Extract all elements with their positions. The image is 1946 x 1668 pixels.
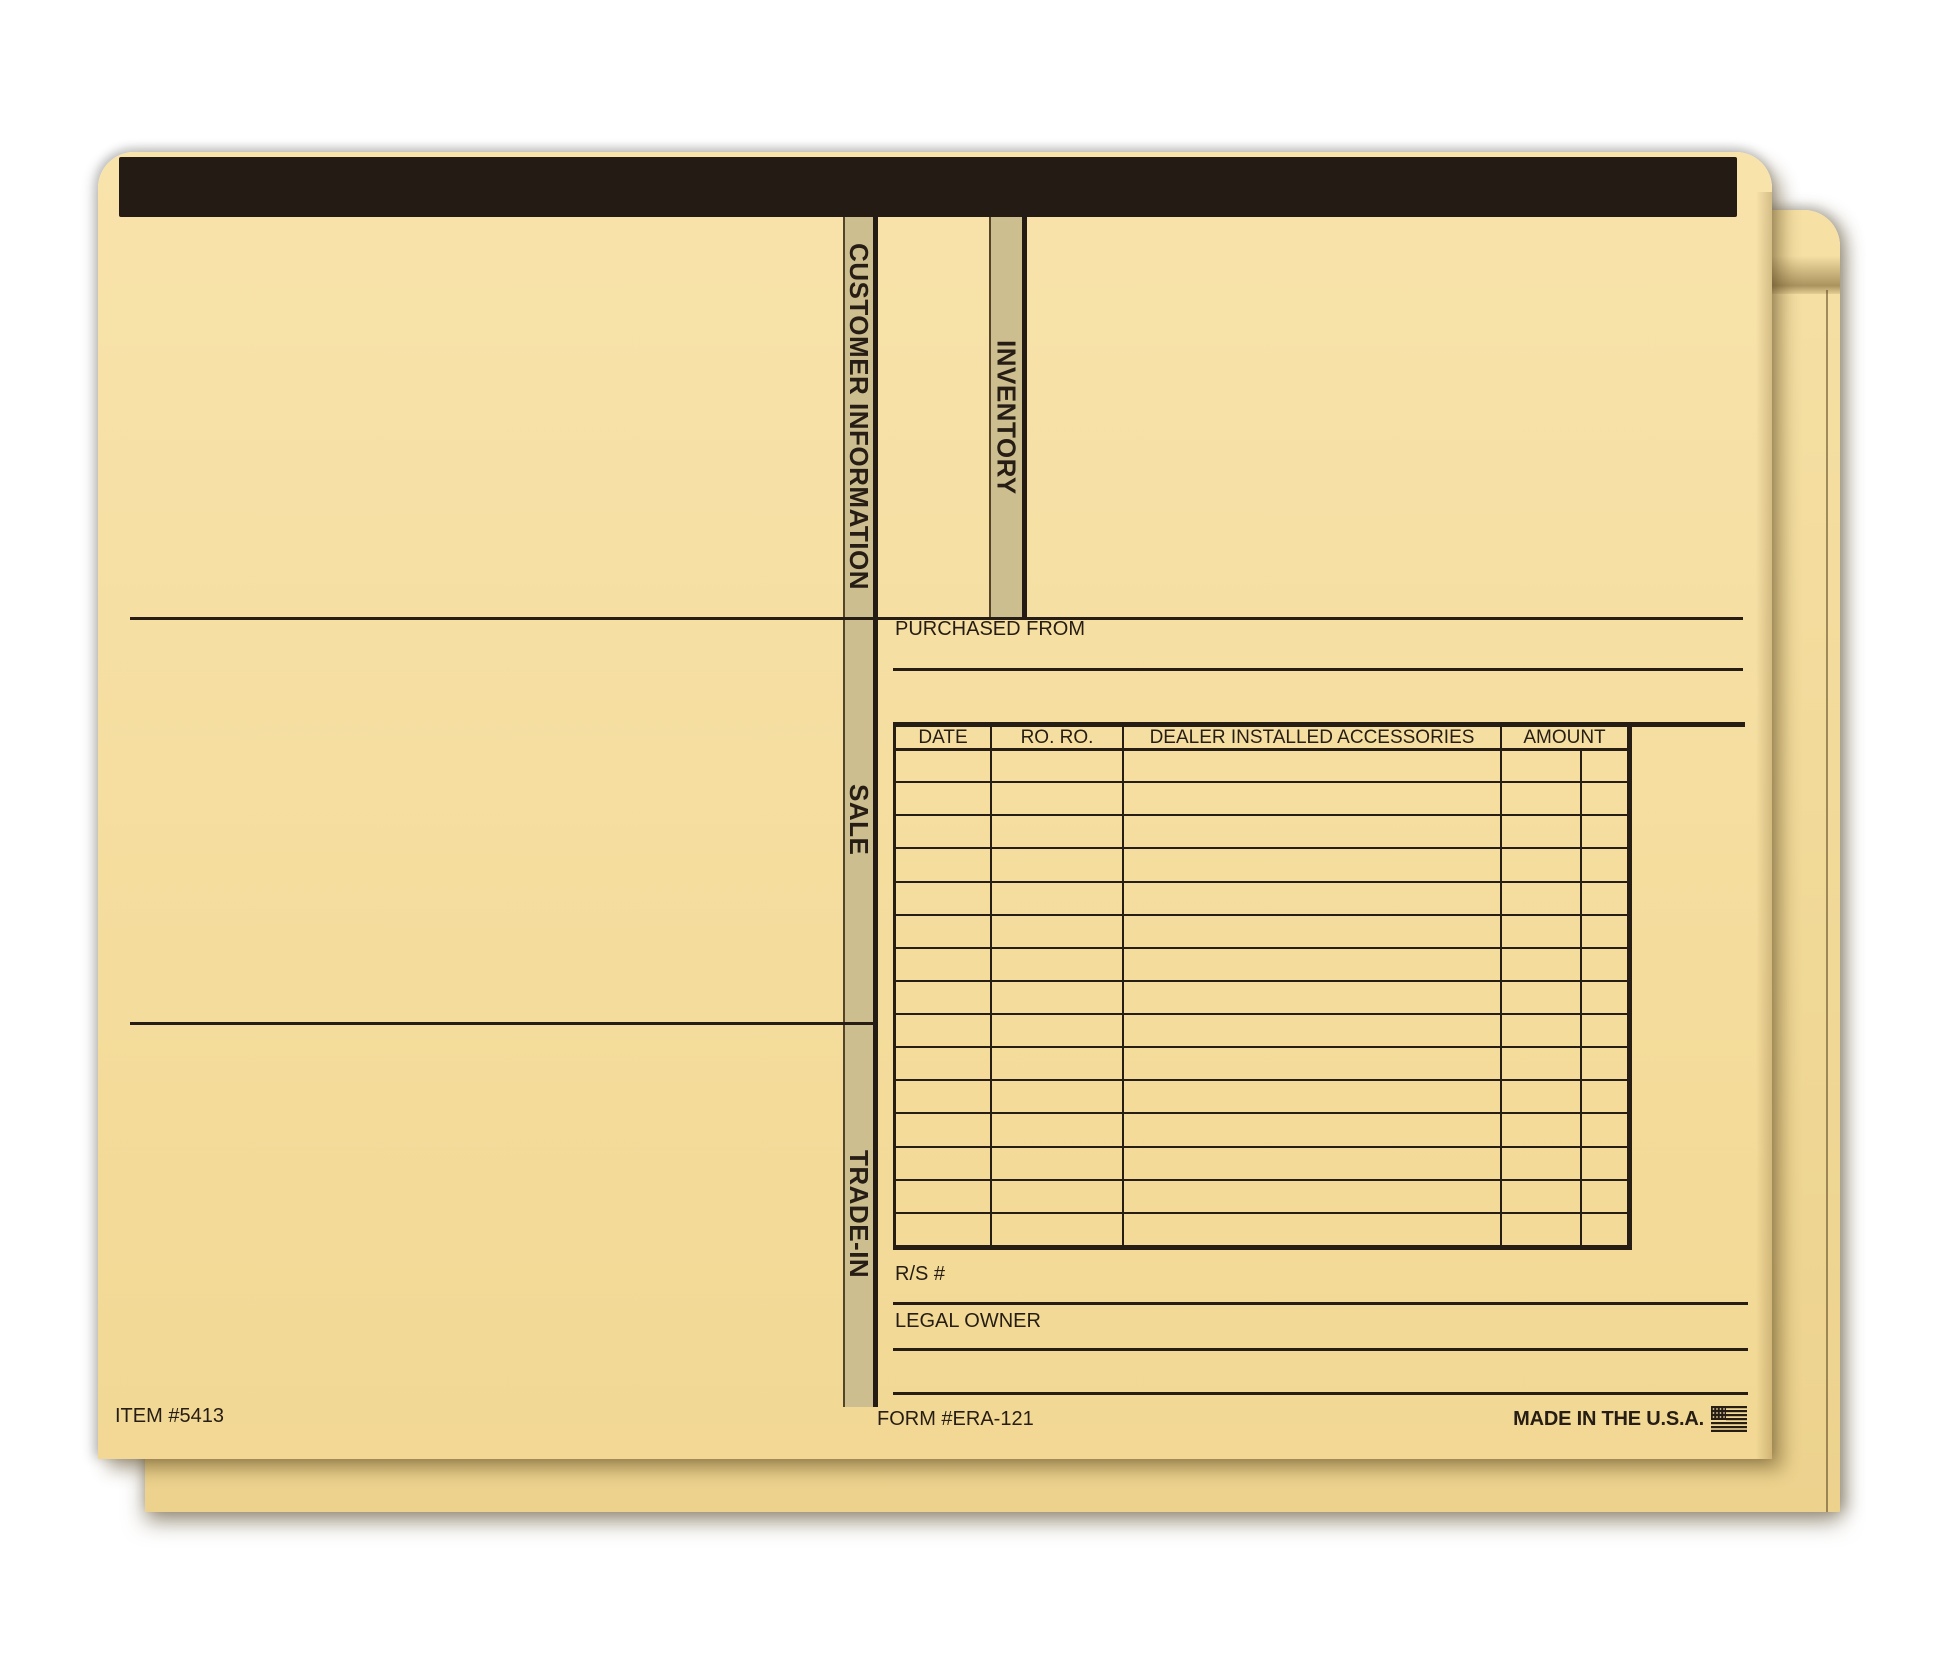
front-panel-fold-shading: [1756, 192, 1772, 1459]
accessories-table: DATE RO. RO. DEALER INSTALLED ACCESSORIE…: [893, 722, 1632, 1250]
table-row-line: [893, 980, 1627, 982]
legal-owner-label: LEGAL OWNER: [895, 1310, 1041, 1333]
inventory-tab-strip: INVENTORY: [989, 217, 1027, 617]
table-row-line: [893, 847, 1627, 849]
purchased-from-write-line: [893, 668, 1743, 671]
table-header-roro: RO. RO.: [992, 727, 1122, 748]
table-header-date: DATE: [896, 727, 990, 748]
table-col-rule-cents: [1580, 751, 1582, 1245]
tab-customer-information: CUSTOMER INFORMATION: [845, 217, 873, 617]
back-tab-fold-shadow: [1770, 256, 1840, 294]
rs-number-write-line: [893, 1302, 1748, 1305]
table-row-line: [893, 814, 1627, 816]
table-row-line: [893, 914, 1627, 916]
back-panel-crease: [1826, 290, 1828, 1512]
table-row-line: [893, 1212, 1627, 1214]
table-row-line: [893, 1079, 1627, 1081]
table-row-line: [893, 1146, 1627, 1148]
table-row-line: [893, 1046, 1627, 1048]
us-flag-icon: [1711, 1406, 1747, 1432]
table-col-rule-roro: [1122, 727, 1124, 1245]
table-row-line: [893, 1112, 1627, 1114]
rs-number-label: R/S #: [895, 1263, 945, 1286]
table-row-line: [893, 781, 1627, 783]
envelope-front-panel: CUSTOMER INFORMATION SALE TRADE-IN INVEN…: [98, 152, 1772, 1459]
table-row-line: [893, 881, 1627, 883]
legal-owner-write-line-2: [893, 1392, 1748, 1395]
tab-inventory: INVENTORY: [991, 217, 1022, 617]
deal-jacket-product-image: CUSTOMER INFORMATION SALE TRADE-IN INVEN…: [0, 0, 1946, 1668]
tab-trade-in-label: TRADE-IN: [845, 1150, 873, 1278]
purchased-from-label: PURCHASED FROM: [895, 618, 1085, 641]
tab-sale-label: SALE: [845, 784, 873, 855]
table-row-line: [893, 947, 1627, 949]
tab-sale: SALE: [845, 617, 873, 1022]
table-bottom-rule: [893, 1245, 1632, 1250]
table-header-amount: AMOUNT: [1502, 727, 1627, 748]
item-number-text: ITEM #5413: [115, 1405, 224, 1428]
table-left-rule: [893, 727, 896, 1245]
legal-owner-write-line-1: [893, 1348, 1748, 1351]
table-right-rule: [1627, 722, 1632, 1250]
tab-trade-in: TRADE-IN: [845, 1022, 873, 1407]
table-row-line: [893, 1179, 1627, 1181]
form-number-text: FORM #ERA-121: [877, 1408, 1034, 1431]
table-col-rule-date: [990, 727, 992, 1245]
tab-inventory-label: INVENTORY: [993, 340, 1021, 495]
tab-customer-information-label: CUSTOMER INFORMATION: [845, 243, 873, 590]
divider-sale-trade-in: [130, 1022, 876, 1025]
top-black-label-bar: [119, 157, 1737, 217]
made-in-usa-text: MADE IN THE U.S.A.: [1513, 1408, 1704, 1431]
table-col-rule-amount: [1500, 727, 1502, 1245]
table-header-accessories: DEALER INSTALLED ACCESSORIES: [1124, 727, 1500, 748]
table-row-line: [893, 1013, 1627, 1015]
section-tab-strip: CUSTOMER INFORMATION SALE TRADE-IN: [843, 217, 878, 1407]
made-in-usa-group: MADE IN THE U.S.A.: [1513, 1406, 1747, 1432]
